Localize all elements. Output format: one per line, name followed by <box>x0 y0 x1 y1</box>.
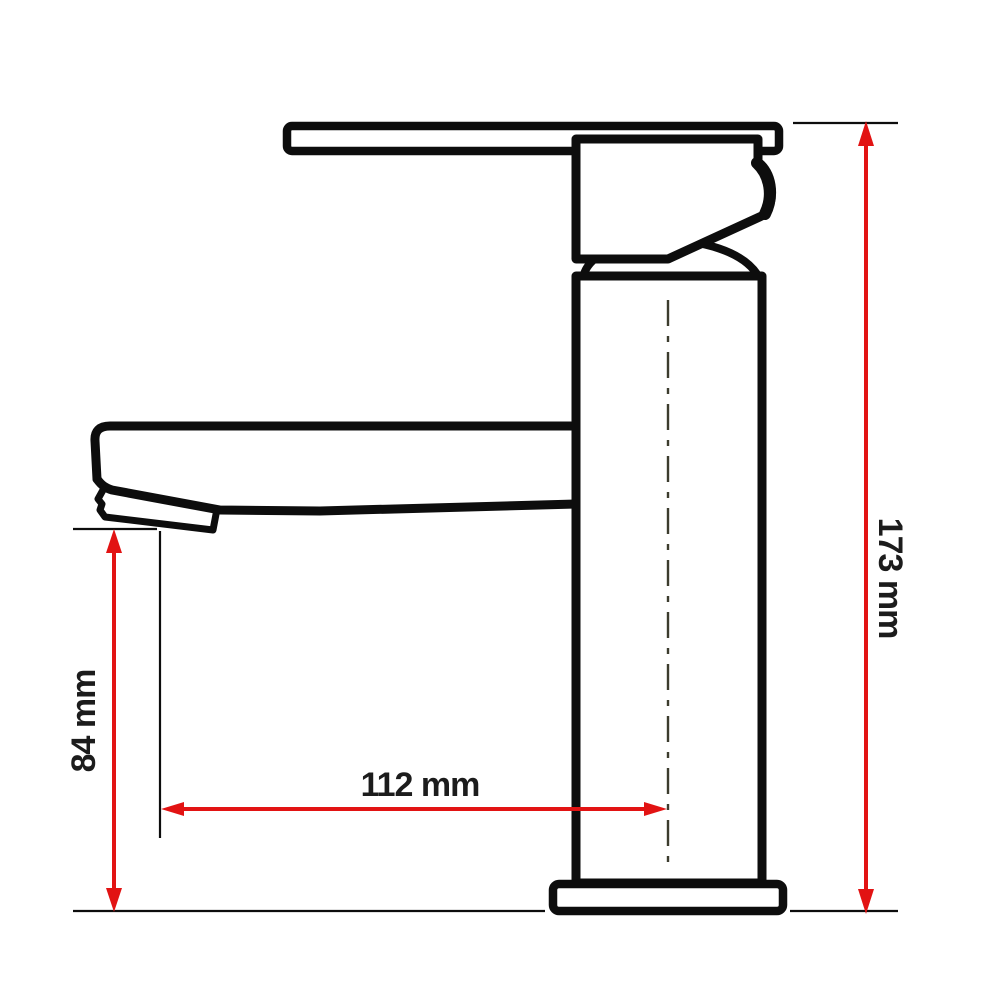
label-112mm: 112 mm <box>361 766 480 804</box>
spout-arm-underside <box>97 479 576 511</box>
faucet-technical-drawing: 84 mm 112 mm 173 mm <box>0 0 1000 1000</box>
arrowhead-up-84mm <box>106 529 122 553</box>
dimension-84mm <box>106 529 122 912</box>
arrowhead-up-173mm <box>858 121 874 146</box>
arrowhead-down-84mm <box>106 888 122 912</box>
drawing-canvas: 84 mm 112 mm 173 mm <box>0 0 1000 1000</box>
label-84mm: 84 mm <box>65 670 103 773</box>
extension-lines <box>73 123 898 911</box>
base-flange <box>553 884 783 911</box>
dimension-labels: 84 mm 112 mm 173 mm <box>65 518 909 804</box>
cartridge-housing <box>576 139 772 259</box>
spout-arm-top <box>95 426 576 479</box>
arrowhead-left-112mm <box>161 802 184 816</box>
label-173mm: 173 mm <box>871 518 909 639</box>
